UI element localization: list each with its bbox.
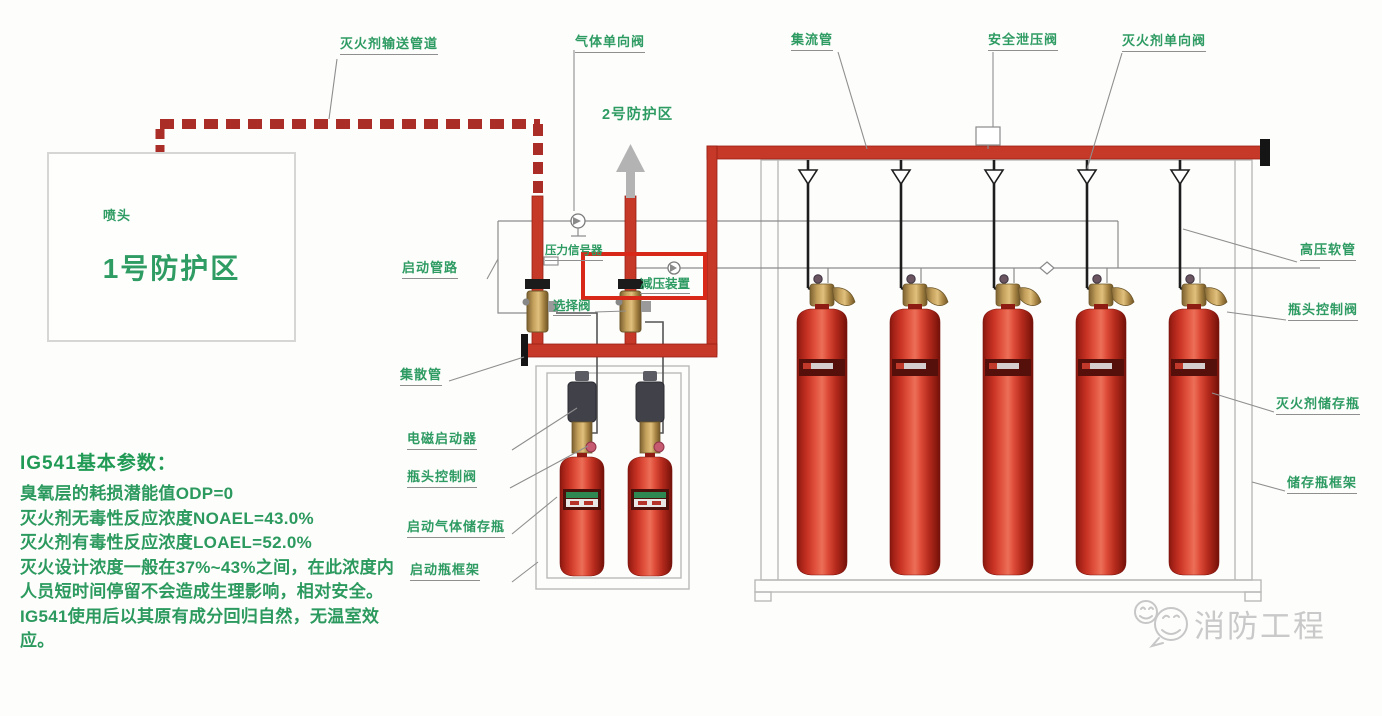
label-start-pipeline: 启动管路 (402, 261, 458, 279)
label-storage-frame: 储存瓶框架 (1287, 476, 1357, 494)
pressure-reducer-valve-icon (668, 262, 680, 274)
info-line: 灭火剂有毒性反应浓度LOAEL=52.0% (20, 531, 398, 556)
manifold-pipe (707, 146, 1264, 159)
info-line: 臭氧层的耗损潜能值ODP=0 (20, 482, 398, 507)
agent-cylinder-5 (1169, 160, 1227, 575)
label-start-frame: 启动瓶框架 (410, 563, 480, 581)
starter-cylinder-2 (628, 371, 672, 576)
collector-pipe (527, 344, 717, 357)
label-pressure-signal: 压力信号器 (545, 245, 603, 261)
label-nozzle: 喷头 (103, 209, 131, 224)
label-manifold: 集流管 (791, 33, 833, 51)
label-head-valve-left: 瓶头控制阀 (407, 470, 477, 488)
label-agent-check-valve: 灭火剂单向阀 (1122, 34, 1206, 52)
agent-cylinder-1 (797, 160, 855, 575)
zone1-label: 1号防护区 (103, 247, 241, 281)
label-collector-pipe: 集散管 (400, 368, 442, 386)
info-line: 灭火设计浓度一般在37%~43%之间，在此浓度内人员短时间停留不会造成生理影响，… (20, 556, 398, 605)
label-solenoid-actuator: 电磁启动器 (407, 432, 477, 450)
label-gas-check-valve: 气体单向阀 (575, 35, 645, 53)
gas-check-valve-icon (571, 214, 586, 236)
label-safety-relief-valve: 安全泄压阀 (988, 33, 1058, 51)
collector-end-cap (521, 334, 528, 366)
zone2-arrow-icon (616, 144, 645, 198)
info-line: 灭火剂无毒性反应浓度NOAEL=43.0% (20, 507, 398, 532)
label-agent-bottle: 灭火剂储存瓶 (1276, 397, 1360, 415)
diagram-stage: 1号防护区 灭火剂输送管道 气体单向阀 集流管 安全泄压阀 灭火剂单向阀 2号防… (0, 0, 1382, 716)
agent-cylinder-3 (983, 160, 1041, 575)
watermark-label: 消防工程 (1194, 601, 1326, 646)
label-delivery-pipe: 灭火剂输送管道 (340, 37, 438, 55)
label-pressure-reducer: 减压装置 (640, 277, 690, 294)
agent-cylinder-4 (1076, 160, 1134, 575)
chat-bubble-logo-icon (1135, 601, 1187, 646)
label-selector-valve: 选择阀 (553, 299, 591, 316)
manifold-end-cap (1260, 139, 1270, 166)
label-start-gas-bottle: 启动气体储存瓶 (407, 520, 505, 538)
ig541-info-panel: IG541基本参数： 臭氧层的耗损潜能值ODP=0 灭火剂无毒性反应浓度NOAE… (20, 448, 398, 654)
zone1-protection-area: 1号防护区 (47, 152, 296, 342)
agent-cylinder-2 (890, 160, 948, 575)
info-line: IG541使用后以其原有成分回归自然，无温室效应。 (20, 605, 398, 654)
info-title: IG541基本参数： (20, 448, 398, 475)
label-head-valve-right: 瓶头控制阀 (1288, 303, 1358, 321)
label-high-pressure-hose: 高压软管 (1300, 243, 1356, 261)
label-zone2: 2号防护区 (602, 107, 673, 124)
line-valve-icon (1040, 262, 1054, 274)
